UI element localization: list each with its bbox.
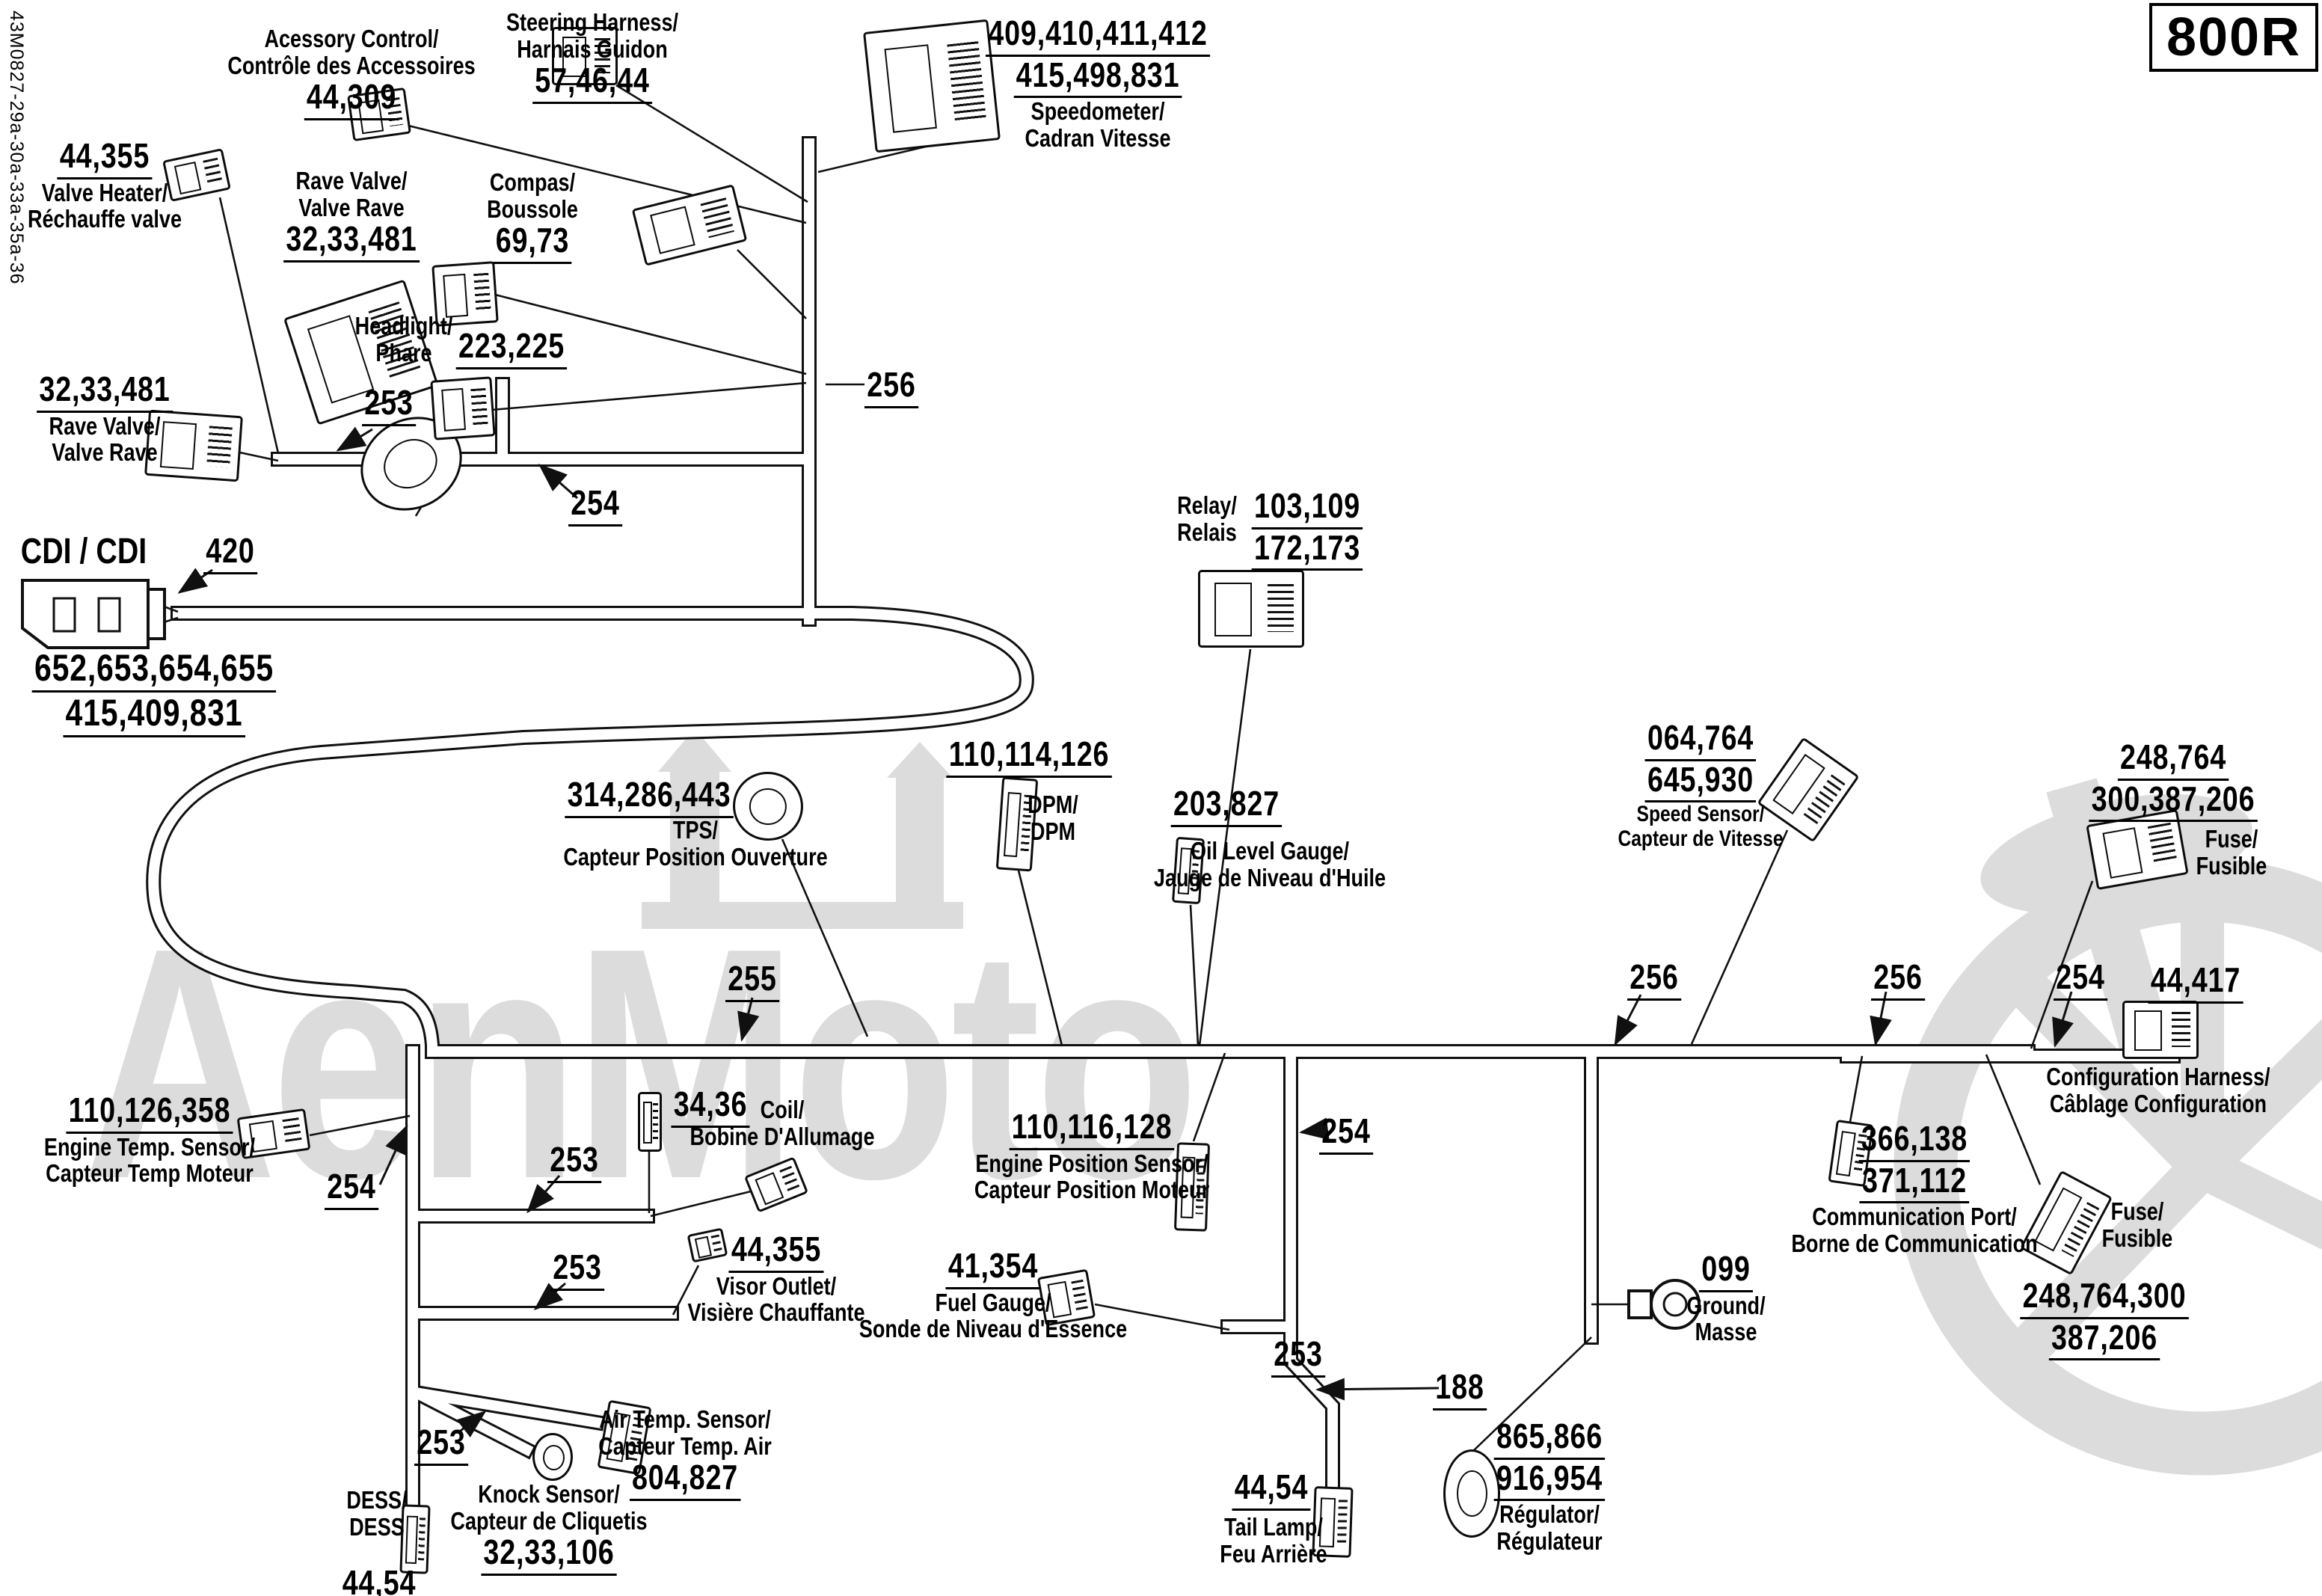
label-tail-lamp-name-line: Tail Lamp/ <box>1220 1514 1327 1541</box>
wiring-diagram-canvas: AenMoto <box>0 0 2322 1596</box>
headlight-connector-2 <box>430 376 495 441</box>
label-ref-188-line: 188 <box>1433 1369 1487 1411</box>
label-compass-line: Boussole <box>487 196 578 223</box>
label-air-temp-line: Air Temp. Sensor/ <box>598 1406 772 1433</box>
label-ground-line: Ground/ <box>1686 1292 1765 1319</box>
label-ref-253-2: 253 <box>547 1141 601 1183</box>
label-ref-256-top: 256 <box>864 366 918 408</box>
label-fuse-right-name-line: Fuse/ <box>2196 826 2267 853</box>
label-tail-lamp-name-line: Feu Arrière <box>1220 1541 1327 1568</box>
label-dess-name-line: DESS <box>346 1514 407 1541</box>
label-speed-sensor-line: Capteur de Vitesse <box>1618 827 1783 851</box>
label-headlight-line: Headlight/ <box>355 313 453 340</box>
label-knock-sensor: Knock Sensor/Capteur de Cliquetis32,33,1… <box>450 1481 647 1576</box>
label-steering-harness-line: Steering Harness/ <box>506 9 678 36</box>
drawing-number: 43M0827-29a-30a-33a-35a-36 <box>5 10 27 285</box>
label-ref-254-topleft-line: 254 <box>568 485 622 527</box>
label-fuse-bottom-name-line: Fusible <box>2102 1225 2173 1252</box>
label-steering-harness-line: Harnais Guidon <box>506 36 678 63</box>
label-ref-254-leftmid-line: 254 <box>325 1168 378 1210</box>
label-ref-253-3: 253 <box>550 1249 604 1291</box>
label-regulator: 865,866916,954Régulator/Régulateur <box>1494 1418 1606 1555</box>
label-valve-heater-line: Réchauffe valve <box>28 206 182 233</box>
label-knock-sensor-line: Knock Sensor/ <box>450 1481 647 1508</box>
label-valve-heater: 44,355Valve Heater/Réchauffe valve <box>28 138 182 233</box>
label-oil-num: 203,827 <box>1171 785 1283 827</box>
label-engine-temp-line: 110,126,358 <box>44 1092 255 1134</box>
label-ref-254-mid: 254 <box>1319 1113 1373 1155</box>
label-comm-port-line: 366,138 <box>1791 1120 2037 1162</box>
label-dess-num-line: 44,54 <box>340 1565 418 1596</box>
label-comm-port-line: Borne de Communication <box>1791 1230 2037 1257</box>
label-relay-name: Relay/Relais <box>1177 492 1237 545</box>
label-fuse-bottom-nums-line: 248,764,300 <box>2020 1277 2188 1319</box>
label-rave-valve-left: 32,33,481Rave Valve/Valve Rave <box>37 371 173 466</box>
label-engine-temp-line: Engine Temp. Sensor/ <box>44 1134 255 1161</box>
label-cdi-line: CDI / CDI <box>21 532 147 571</box>
label-coil-name: Coil/Bobine D'Allumage <box>690 1096 875 1150</box>
label-tail-lamp-name: Tail Lamp/Feu Arrière <box>1220 1514 1327 1567</box>
label-ref-256-top-line: 256 <box>864 366 918 408</box>
label-ground: 099Ground/Masse <box>1686 1250 1765 1345</box>
label-fuse-bottom-nums: 248,764,300387,206 <box>2020 1277 2188 1360</box>
label-rave-valve-left-line: Valve Rave <box>37 439 173 466</box>
label-headlight: Headlight/Phare <box>355 313 453 366</box>
label-headlight-num: 223,225 <box>456 328 568 369</box>
label-engine-temp-line: Capteur Temp Moteur <box>44 1160 255 1187</box>
label-compass: Compas/Boussole69,73 <box>487 169 578 264</box>
knock-sensor-connector <box>532 1433 573 1481</box>
label-accessory-control: Acessory Control/Contrôle des Accessoire… <box>227 25 475 120</box>
label-speedometer-line: Cadran Vitesse <box>986 125 1210 152</box>
label-fuel-gauge-line: 41,354 <box>859 1247 1127 1289</box>
label-comm-port: 366,138371,112Communication Port/Borne d… <box>1791 1120 2037 1257</box>
label-dess-name: DESS/DESS <box>346 1487 407 1540</box>
label-relay-name-line: Relay/ <box>1177 492 1237 519</box>
label-ref-256-mid2-line: 256 <box>1871 959 1925 1001</box>
label-knock-sensor-line: Capteur de Cliquetis <box>450 1508 647 1535</box>
label-ref-253-2-line: 253 <box>547 1141 601 1183</box>
label-engine-position: 110,116,128Engine Position Sensor/Capteu… <box>974 1108 1209 1203</box>
label-rave-valve-left-line: Rave Valve/ <box>37 413 173 440</box>
label-cdi-nums: 652,653,654,655415,409,831 <box>32 648 277 737</box>
label-regulator-line: 865,866 <box>1494 1418 1606 1460</box>
label-fuel-gauge-line: Fuel Gauge/ <box>859 1289 1127 1316</box>
label-engine-position-line: 110,116,128 <box>974 1108 1209 1150</box>
label-compass-line: Compas/ <box>487 169 578 196</box>
label-fuse-right-nums-line: 248,764 <box>2089 739 2257 781</box>
label-ref-254-right: 254 <box>2054 959 2107 1001</box>
label-comm-port-line: Communication Port/ <box>1791 1203 2037 1230</box>
label-fuel-gauge-line: Sonde de Niveau d'Essence <box>859 1316 1127 1342</box>
label-air-temp-line: Capteur Temp. Air <box>598 1433 772 1460</box>
label-relay-nums-line: 172,173 <box>1252 530 1363 571</box>
label-speed-sensor: 064,764645,930Speed Sensor/Capteur de Vi… <box>1618 719 1783 851</box>
label-ref-44417: 44,417 <box>2149 962 2243 1004</box>
label-oil-name-line: Jauge de Niveau d'Huile <box>1154 865 1386 891</box>
label-ref-254-topleft: 254 <box>568 485 622 527</box>
cdi-connector <box>22 580 165 648</box>
label-rave-valve-top: Rave Valve/Valve Rave32,33,481 <box>283 168 420 263</box>
label-cdi-nums-line: 652,653,654,655 <box>32 648 277 693</box>
label-cdi: CDI / CDI <box>21 532 147 571</box>
label-engine-position-line: Engine Position Sensor/ <box>974 1150 1209 1177</box>
label-visor-outlet-line: 44,355 <box>687 1231 864 1273</box>
label-config-harness-line: Configuration Harness/ <box>2046 1064 2270 1090</box>
label-engine-temp: 110,126,358Engine Temp. Sensor/Capteur T… <box>44 1092 255 1187</box>
label-dess-name-line: DESS/ <box>346 1487 407 1514</box>
label-relay-name-line: Relais <box>1177 519 1237 546</box>
label-speedometer-line: Speedometer/ <box>986 98 1210 125</box>
label-regulator-line: Régulateur <box>1494 1528 1606 1555</box>
label-valve-heater-line: 44,355 <box>28 138 182 179</box>
label-steering-harness: Steering Harness/Harnais Guidon57,46,44 <box>506 9 678 104</box>
label-ref-253-4: 253 <box>1271 1336 1325 1378</box>
label-dess-num: 44,54 <box>340 1565 418 1596</box>
label-relay-nums: 103,109172,173 <box>1252 488 1363 571</box>
label-fuse-right-name: Fuse/Fusible <box>2196 826 2267 879</box>
label-oil-num-line: 203,827 <box>1171 785 1283 827</box>
label-rave-valve-left-line: 32,33,481 <box>37 371 173 413</box>
label-fuse-bottom-nums-line: 387,206 <box>2020 1319 2188 1361</box>
model-badge: 800R <box>2149 3 2318 72</box>
label-valve-heater-line: Valve Heater/ <box>28 179 182 206</box>
label-dpm-num-line: 110,114,126 <box>946 736 1111 778</box>
label-config-harness-line: Câblage Configuration <box>2046 1090 2270 1117</box>
label-ref-255-line: 255 <box>725 960 779 1002</box>
label-tps-num: 314,286,443 <box>565 776 733 818</box>
label-ref-254-leftmid: 254 <box>325 1168 378 1210</box>
label-rave-valve-top-line: Rave Valve/ <box>283 168 420 194</box>
label-regulator-line: 916,954 <box>1494 1460 1606 1502</box>
label-ref-44417-line: 44,417 <box>2149 962 2243 1004</box>
label-tail-lamp-num: 44,54 <box>1232 1469 1310 1511</box>
label-ref-253-top-line: 253 <box>362 384 416 426</box>
label-rave-valve-top-line: 32,33,481 <box>283 221 420 263</box>
label-visor-outlet-line: Visor Outlet/ <box>687 1273 864 1300</box>
label-accessory-control-line: 44,309 <box>227 79 475 120</box>
label-fuse-bottom-name: Fuse/Fusible <box>2102 1198 2173 1251</box>
label-ref-254-right-line: 254 <box>2054 959 2107 1001</box>
relay-connector <box>1198 570 1304 648</box>
label-rave-valve-top-line: Valve Rave <box>283 194 420 221</box>
label-accessory-control-line: Contrôle des Accessoires <box>227 52 475 79</box>
label-headlight-line: Phare <box>355 340 453 366</box>
label-dpm-name-line: DPM <box>1028 818 1078 845</box>
label-speedometer-line: 415,498,831 <box>986 57 1210 99</box>
label-coil-name-line: Bobine D'Allumage <box>690 1123 875 1150</box>
label-coil-name-line: Coil/ <box>690 1096 875 1123</box>
label-oil-name: Oil Level Gauge/Jauge de Niveau d'Huile <box>1154 838 1386 891</box>
label-ref-256-mid1: 256 <box>1627 959 1681 1001</box>
label-dpm-num: 110,114,126 <box>946 736 1111 778</box>
label-cdi-nums-line: 415,409,831 <box>32 693 277 737</box>
config-connector <box>2122 1001 2199 1059</box>
label-speed-sensor-line: 645,930 <box>1618 761 1783 803</box>
label-knock-sensor-line: 32,33,106 <box>450 1534 647 1576</box>
label-ref-254-mid-line: 254 <box>1319 1113 1373 1155</box>
label-ref-188: 188 <box>1433 1369 1487 1411</box>
regulator-connector <box>1443 1449 1500 1538</box>
label-regulator-line: Régulator/ <box>1494 1501 1606 1528</box>
label-accessory-control-line: Acessory Control/ <box>227 25 475 52</box>
label-speedometer: 409,410,411,412415,498,831Speedometer/Ca… <box>986 15 1210 152</box>
label-compass-line: 69,73 <box>487 222 578 264</box>
label-oil-name-line: Oil Level Gauge/ <box>1154 838 1386 865</box>
speedometer-connector <box>863 19 1001 153</box>
label-fuel-gauge: 41,354Fuel Gauge/Sonde de Niveau d'Essen… <box>859 1247 1127 1342</box>
label-fuse-right-name-line: Fusible <box>2196 853 2267 880</box>
label-config-harness: Configuration Harness/Câblage Configurat… <box>2046 1064 2270 1117</box>
label-tps-name-line: TPS/ <box>563 817 827 844</box>
label-ref-420: 420 <box>203 532 257 574</box>
label-headlight-num-line: 223,225 <box>456 328 568 369</box>
label-dpm-name-line: DPM/ <box>1028 791 1078 818</box>
label-visor-outlet-line: Visière Chauffante <box>687 1299 864 1326</box>
label-tail-lamp-num-line: 44,54 <box>1232 1469 1310 1511</box>
label-tps-name: TPS/Capteur Position Ouverture <box>563 817 827 870</box>
label-ref-253-5-line: 253 <box>414 1424 468 1466</box>
label-ref-253-3-line: 253 <box>550 1249 604 1291</box>
label-ref-253-top: 253 <box>362 384 416 426</box>
label-speed-sensor-line: 064,764 <box>1618 719 1783 761</box>
label-ref-256-mid2: 256 <box>1871 959 1925 1001</box>
label-ref-255: 255 <box>725 960 779 1002</box>
label-visor-outlet: 44,355Visor Outlet/Visière Chauffante <box>687 1231 864 1326</box>
label-ref-420-line: 420 <box>203 532 257 574</box>
label-relay-nums-line: 103,109 <box>1252 488 1363 530</box>
label-fuse-bottom-name-line: Fuse/ <box>2102 1198 2173 1225</box>
label-ground-line: 099 <box>1686 1250 1765 1292</box>
label-ref-253-4-line: 253 <box>1271 1336 1325 1378</box>
label-speedometer-line: 409,410,411,412 <box>986 15 1210 57</box>
label-ref-253-5: 253 <box>414 1424 468 1466</box>
label-engine-position-line: Capteur Position Moteur <box>974 1176 1209 1203</box>
label-speed-sensor-line: Speed Sensor/ <box>1618 802 1783 826</box>
label-ref-256-mid1-line: 256 <box>1627 959 1681 1001</box>
label-comm-port-line: 371,112 <box>1791 1162 2037 1204</box>
label-steering-harness-line: 57,46,44 <box>506 62 678 104</box>
coil-connector <box>638 1092 662 1152</box>
label-fuse-right-nums-line: 300,387,206 <box>2089 781 2257 823</box>
label-ground-line: Masse <box>1686 1319 1765 1345</box>
label-dpm-name: DPM/DPM <box>1028 791 1078 844</box>
label-fuse-right-nums: 248,764300,387,206 <box>2089 739 2257 822</box>
label-tps-name-line: Capteur Position Ouverture <box>563 844 827 871</box>
label-tps-num-line: 314,286,443 <box>565 776 733 818</box>
